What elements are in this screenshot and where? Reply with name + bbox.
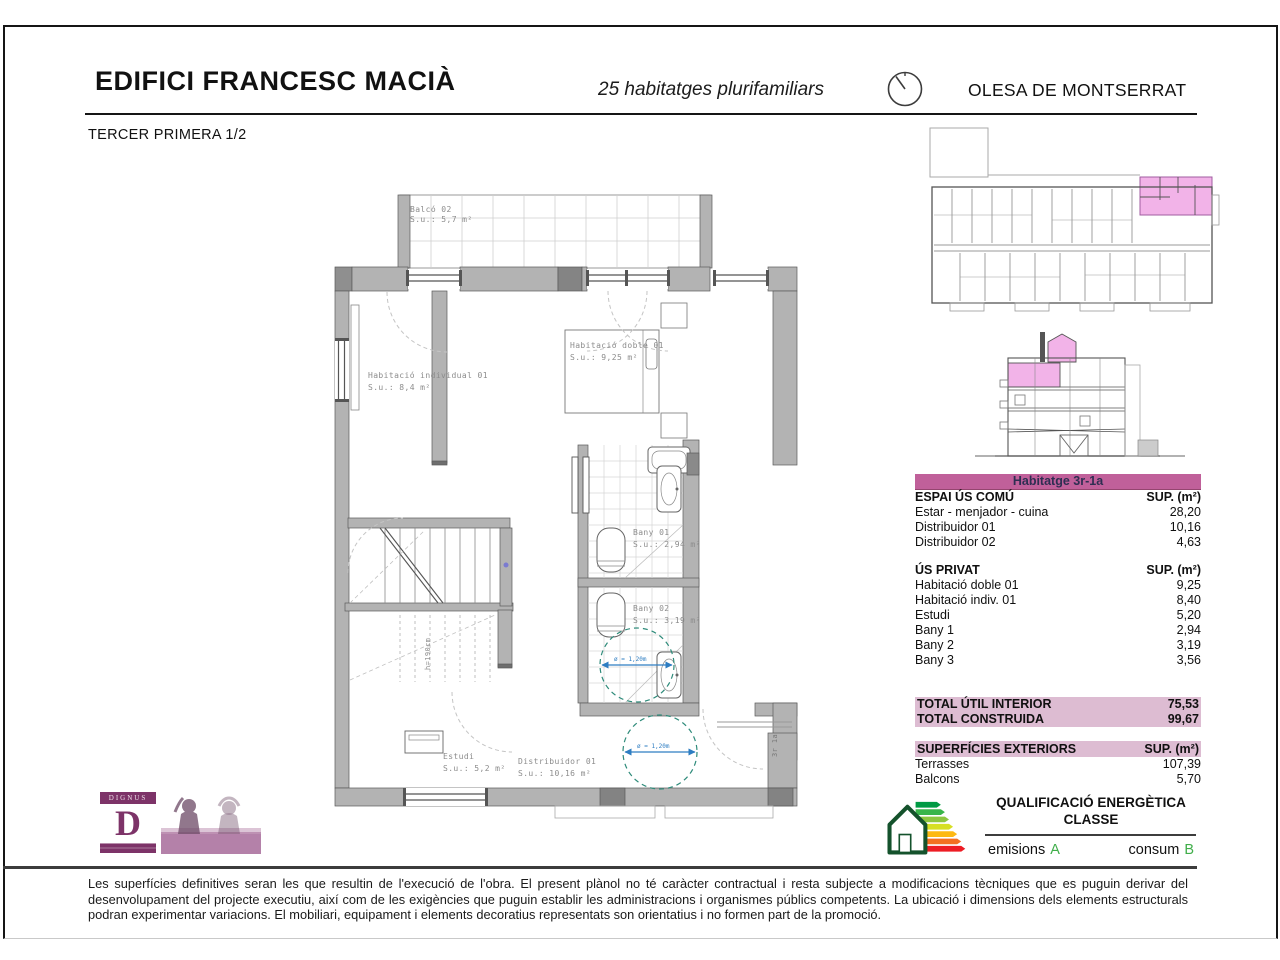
plan-sheet-page: EDIFICI FRANCESC MACIÀ 25 habitatges plu… [0,0,1280,960]
row-label: Bany 1 [915,623,954,638]
table-row: Habitació indiv. 018,40 [915,593,1201,608]
energy-title-line1: QUALIFICACIÓ ENERGÈTICA [985,794,1197,811]
area-table: Habitatge 3r-1a ESPAI ÚS COMÚ SUP. (m²) … [915,474,1201,787]
nightstand [661,303,687,328]
logo-caption-band [100,843,156,853]
row-label: Bany 3 [915,653,954,668]
total-construida-row: TOTAL CONSTRUIDA 99,67 [915,712,1201,727]
row-value: 4,63 [1177,535,1201,550]
column-header: SUP. (m²) [1146,563,1201,578]
consumption-grade: B [1184,842,1194,858]
header-rule [85,113,1197,115]
page-subtitle: 25 habitatges plurifamiliars [598,79,824,101]
room-area-hab-individual: S.u.: 8,4 m² [368,383,431,392]
row-value: 28,20 [1170,505,1201,520]
row-label: Estudi [915,608,950,623]
row-label: Habitació doble 01 [915,578,1019,593]
stair-height-label: h=190cm [424,638,432,670]
balcony-area: Balcó 02 S.u.: 5,7 m² [398,195,712,268]
desk [405,731,443,753]
row-value: 3,56 [1177,653,1201,668]
room-label-bany02: Bany 02 [633,604,670,613]
emissions-pair: emisionsA [988,842,1060,858]
room-area-hab-doble: S.u.: 9,25 m² [570,353,638,362]
room-label-balco: Balcó 02 [410,204,452,214]
row-label: Balcons [915,772,959,787]
highlighted-floor [1008,363,1060,387]
logo-monogram: DIGNUS D [100,792,156,854]
page-title: EDIFICI FRANCESC MACIÀ [95,66,456,97]
room-area-distribuidor: S.u.: 10,16 m² [518,769,591,778]
disclaimer-text: Les superfícies definitives seran les qu… [88,876,1188,923]
room-area-bany02: S.u.: 3,19 m² [633,616,701,625]
toilet-bany01 [597,528,625,572]
row-value: 8,40 [1177,593,1201,608]
section-drawing [975,320,1185,470]
consumption-label: consum [1129,842,1180,858]
row-label: Terrasses [915,757,969,772]
row-label: Estar - menjador - cuina [915,505,1048,520]
row-label: Habitació indiv. 01 [915,593,1016,608]
room-area-estudi: S.u.: 5,2 m² [443,764,506,773]
table-row: Bany 33,56 [915,653,1201,668]
section-label: ESPAI ÚS COMÚ [915,490,1014,505]
diameter-label: ø = 1,20m [614,656,647,663]
total-value: 75,53 [1168,697,1199,712]
energy-title-line2: CLASSE [985,811,1197,828]
developer-logo: DIGNUS D [100,792,261,854]
footer-rule [3,866,1197,869]
door-jamb [572,457,578,513]
row-value: 3,19 [1177,638,1201,653]
table-row: Bany 23,19 [915,638,1201,653]
room-area-balco: S.u.: 5,7 m² [410,215,473,224]
total-label: TOTAL CONSTRUIDA [917,712,1044,727]
section-label: ÚS PRIVAT [915,563,980,578]
emissions-label: emisions [988,842,1045,858]
energy-house-icon [883,791,971,865]
sheet-floor-label: TERCER PRIMERA 1/2 [88,127,247,143]
room-area-bany01: S.u.: 2,94 m² [633,540,701,549]
room-label-distribuidor: Distribuidor 01 [518,757,596,766]
room-label-estudi: Estudi [443,752,474,761]
row-value: 10,16 [1170,520,1201,535]
energy-rule [985,834,1196,836]
key-plan-drawing [920,125,1220,315]
table-row: Habitació doble 019,25 [915,578,1201,593]
emissions-grade: A [1050,842,1060,858]
table-row: Distribuidor 0110,16 [915,520,1201,535]
area-table-title: Habitatge 3r-1a [915,474,1201,490]
section-label: SUPERFÍCIES EXTERIORS [917,741,1076,757]
table-section-header: ÚS PRIVAT SUP. (m²) [915,563,1201,578]
row-label: Bany 2 [915,638,954,653]
row-value: 5,70 [1177,772,1201,787]
highlighted-unit [1140,177,1212,215]
column-header: SUP. (m²) [1144,741,1199,757]
row-label: Distribuidor 01 [915,520,996,535]
row-value: 5,20 [1177,608,1201,623]
table-row: Balcons5,70 [915,772,1201,787]
column-header: SUP. (m²) [1146,490,1201,505]
table-row: Estudi5,20 [915,608,1201,623]
unit-door-label: 3r 1a [771,734,779,757]
exteriors-header-row: SUPERFÍCIES EXTERIORS SUP. (m²) [915,741,1201,757]
table-row: Terrasses107,39 [915,757,1201,772]
table-row: Estar - menjador - cuina28,20 [915,505,1201,520]
logo-letter: D [100,804,156,842]
nightstand [661,413,687,438]
consumption-pair: consumB [1129,842,1194,858]
table-row: Distribuidor 024,63 [915,535,1201,550]
door-jamb [583,457,589,513]
row-value: 2,94 [1177,623,1201,638]
room-label-bany01: Bany 01 [633,528,670,537]
row-value: 107,39 [1163,757,1201,772]
clock-icon [886,68,924,110]
toilet-bany02 [597,593,625,637]
door-arcs [348,291,763,769]
energy-title: QUALIFICACIÓ ENERGÈTICA CLASSE [985,794,1197,828]
location-label: OLESA DE MONTSERRAT [968,80,1186,101]
row-label: Distribuidor 02 [915,535,996,550]
energy-values: emisionsA consumB [988,842,1194,858]
table-row: Bany 12,94 [915,623,1201,638]
logo-photo [161,792,261,854]
total-label: TOTAL ÚTIL INTERIOR [917,697,1052,712]
room-label-hab-individual: Habitació individual 01 [368,370,488,380]
room-label-hab-doble: Habitació doble 01 [570,340,664,350]
row-value: 9,25 [1177,578,1201,593]
table-section-header: ESPAI ÚS COMÚ SUP. (m²) [915,490,1201,505]
reference-dot [504,563,509,568]
floor-plan-drawing: Balcó 02 S.u.: 5,7 m² [325,175,805,825]
plan-windows [335,269,792,818]
diameter-label: ø = 1,20m [637,743,670,750]
wardrobe [351,305,359,410]
total-value: 99,67 [1168,712,1199,727]
total-util-row: TOTAL ÚTIL INTERIOR 75,53 [915,697,1201,712]
